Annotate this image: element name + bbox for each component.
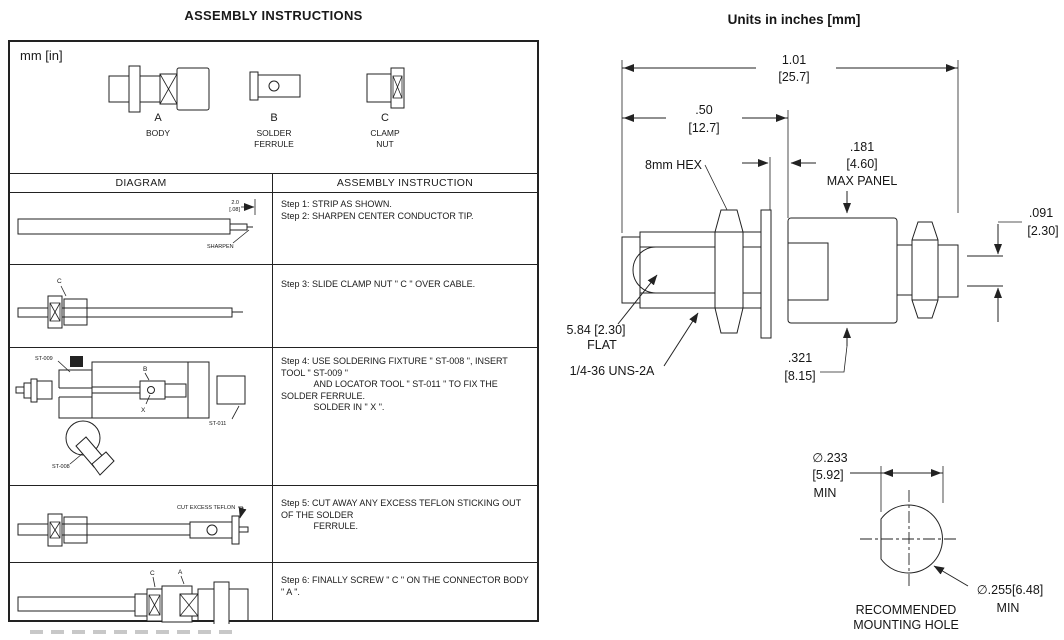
part-b-label: B SOLDER FERRULE xyxy=(234,112,314,149)
st011-label: ST-011 xyxy=(209,421,226,427)
cut-teflon-label: CUT EXCESS TEFLON xyxy=(177,505,235,511)
part-c-clampnut-figure xyxy=(367,68,404,108)
instruction-step-3: Step 3: SLIDE CLAMP NUT " C " OVER CABLE… xyxy=(273,265,537,347)
diagram-final-assembly: C A xyxy=(10,563,273,620)
dim-pin: .091 [2.30] xyxy=(967,206,1059,322)
instruction-step-4: Step 4: USE SOLDERING FIXTURE " ST-008 "… xyxy=(273,348,537,485)
clamp-nut-c-label: C xyxy=(57,278,62,285)
part-b-name: SOLDER FERRULE xyxy=(234,128,314,149)
dim-pin-in: .091 xyxy=(1029,206,1053,220)
mounting-hole-view: ∅.233 [5.92] MIN ∅.255[6.48] MIN RECOMME… xyxy=(812,451,1043,632)
hex-callout: 8mm HEX xyxy=(645,158,732,220)
diagram-clamp-nut: C xyxy=(10,265,273,347)
instruction-step-6: Step 6: FINALLY SCREW " C " ON THE CONNE… xyxy=(273,563,537,620)
hole-caption-line2: MOUNTING HOLE xyxy=(853,618,959,632)
hole-dia: ∅.255[6.48] xyxy=(977,583,1044,597)
part-a-name: BODY xyxy=(118,128,198,139)
table-header: DIAGRAM ASSEMBLY INSTRUCTION xyxy=(10,173,537,193)
diagram-strip-cable: 2.0 [.08] SHARPEN xyxy=(10,193,273,264)
units-note: mm [in] xyxy=(20,48,63,63)
table-row: C Step 3: SLIDE CLAMP NUT " C " OVER CAB… xyxy=(10,265,537,348)
hole-flat-dia: ∅.233 xyxy=(812,451,847,465)
dim-overall: 1.01 [25.7] xyxy=(622,53,958,233)
flat-value: 5.84 [2.30] xyxy=(566,323,625,337)
strip-dim-top: 2.0 xyxy=(231,200,239,206)
table-row: ST-009 xyxy=(10,348,537,486)
dim-panel-note: MAX PANEL xyxy=(827,174,898,188)
strip-dim-bottom: [.08] xyxy=(229,207,240,213)
dimension-drawing: Units in inches [mm] 1.01 [25.7] .50 [12… xyxy=(544,0,1064,640)
st009-label: ST-009 xyxy=(35,356,53,362)
connector-side-view xyxy=(622,210,958,338)
table-row: 2.0 [.08] SHARPEN Step 1: STRIP AS SHOWN… xyxy=(10,193,537,265)
instruction-steps-1-2: Step 1: STRIP AS SHOWN. Step 2: SHARPEN … xyxy=(273,193,537,264)
dim-pin-mm: [2.30] xyxy=(1027,224,1058,238)
part-a-label: A BODY xyxy=(118,112,198,139)
dim-len: .321 [8.15] xyxy=(784,328,847,383)
thread-label: 1/4-36 UNS-2A xyxy=(570,364,655,378)
solder-x-label: X xyxy=(141,407,146,414)
part-c-label: C CLAMP NUT xyxy=(345,112,425,149)
cropped-footnote-text xyxy=(30,630,240,634)
assembly-table: mm [in] xyxy=(8,40,539,622)
diagram-soldering-fixture: ST-009 xyxy=(10,348,273,485)
dim-half-in: .50 xyxy=(695,103,712,117)
hole-dia-min: MIN xyxy=(997,601,1020,615)
parts-drawing xyxy=(10,42,538,173)
sharpen-label: SHARPEN xyxy=(207,244,234,250)
dim-overall-in: 1.01 xyxy=(782,53,806,67)
part-c-name: CLAMP NUT xyxy=(345,128,425,149)
drawing-title: Units in inches [mm] xyxy=(728,12,861,27)
parts-overview: mm [in] xyxy=(10,42,537,173)
part-a-body-figure xyxy=(109,66,209,112)
dim-len-mm: [8.15] xyxy=(784,369,815,383)
instruction-column-header: ASSEMBLY INSTRUCTION xyxy=(273,174,537,192)
table-row: CUT EXCESS TEFLON Step 5: CUT AWAY ANY E… xyxy=(10,486,537,563)
part-c-letter: C xyxy=(345,112,425,124)
dim-panel-mm: [4.60] xyxy=(846,157,877,171)
assembly-sheet: { "left": { "title": "ASSEMBLY INSTRUCTI… xyxy=(0,0,1064,640)
hole-flat-min: MIN xyxy=(814,486,837,500)
final-c-label: C xyxy=(150,570,155,577)
hex-label: 8mm HEX xyxy=(645,158,703,172)
dim-panel-in: .181 xyxy=(850,140,874,154)
page-title: ASSEMBLY INSTRUCTIONS xyxy=(8,8,539,23)
diagram-cut-teflon: CUT EXCESS TEFLON xyxy=(10,486,273,562)
table-row: C A Step 6: FINALLY SCREW " C " ON THE C… xyxy=(10,563,537,620)
st008-label: ST-008 xyxy=(52,464,70,470)
ferrule-b-label: B xyxy=(143,366,147,373)
flat-note: FLAT xyxy=(587,338,617,352)
dim-len-in: .321 xyxy=(788,351,812,365)
dim-max-panel: .181 [4.60] MAX PANEL xyxy=(742,140,897,213)
diagram-column-header: DIAGRAM xyxy=(10,174,273,192)
final-a-label: A xyxy=(178,569,183,576)
part-b-letter: B xyxy=(234,112,314,124)
dim-overall-mm: [25.7] xyxy=(778,70,809,84)
instruction-step-5: Step 5: CUT AWAY ANY EXCESS TEFLON STICK… xyxy=(273,486,537,562)
hole-flat-mm: [5.92] xyxy=(812,468,843,482)
hole-caption-line1: RECOMMENDED xyxy=(856,603,957,617)
part-b-ferrule-figure xyxy=(250,72,300,100)
part-a-letter: A xyxy=(118,112,198,124)
dim-half-mm: [12.7] xyxy=(688,121,719,135)
